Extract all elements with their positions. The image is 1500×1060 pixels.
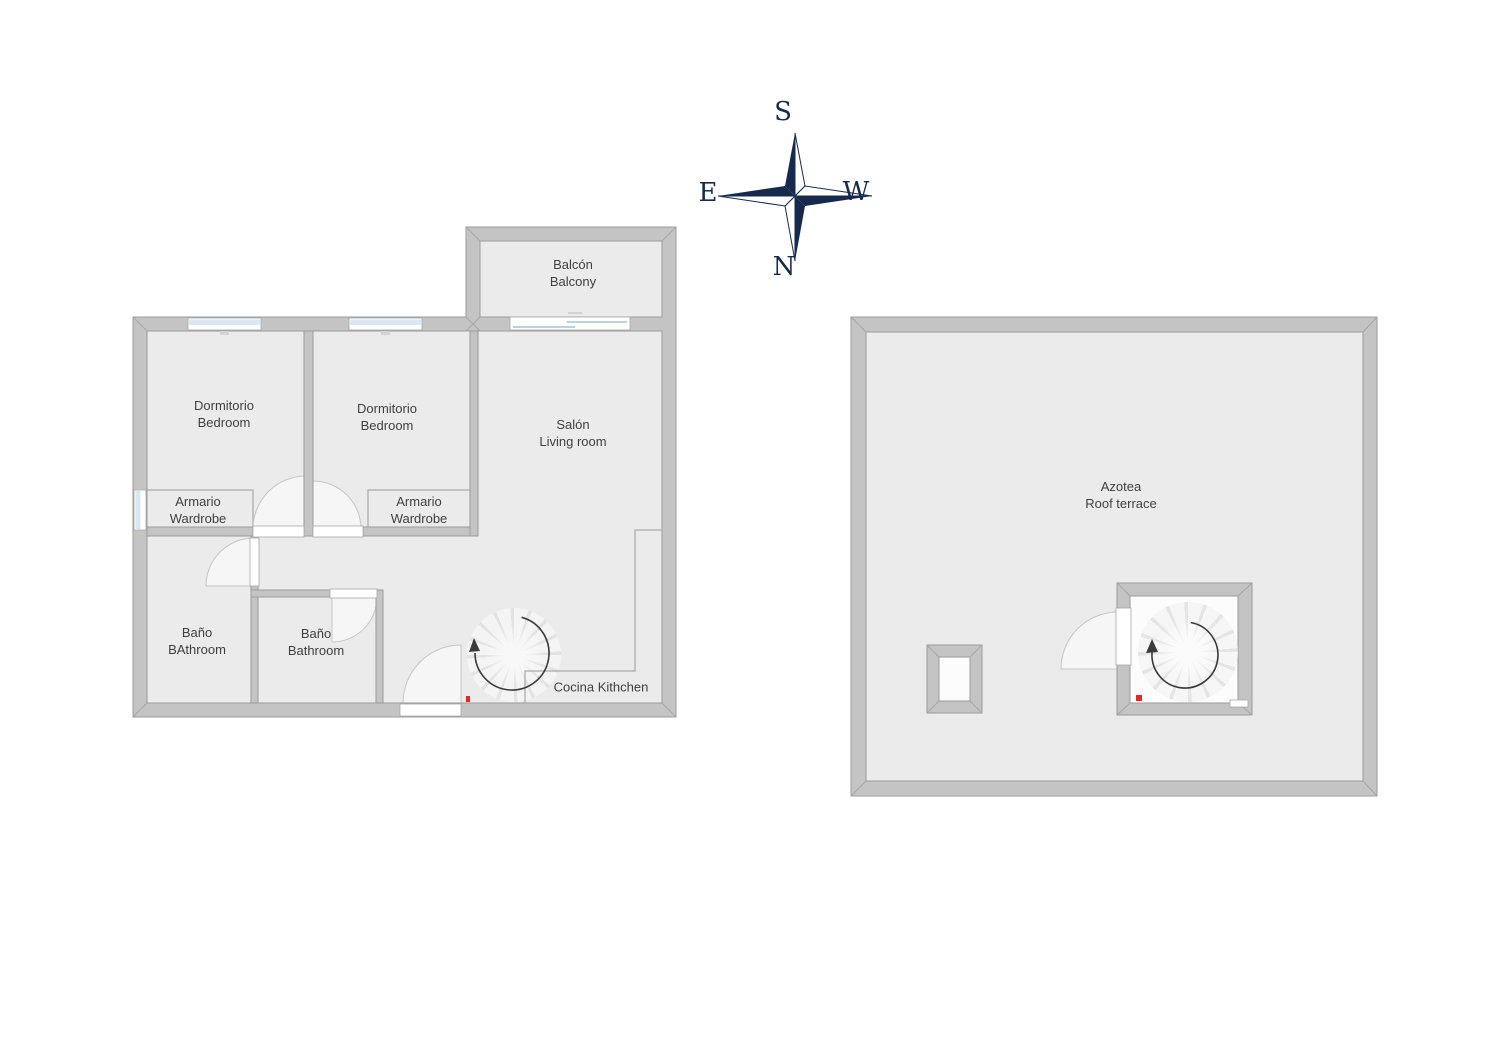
room-label-roof-terrace: Azotea Roof terrace — [1085, 478, 1157, 512]
room-name-en: Wardrobe — [391, 511, 448, 526]
entrance-threshold — [400, 704, 461, 716]
room-label-balcony: Balcón Balcony — [550, 256, 596, 290]
room-label-bedroom1: Dormitorio Bedroom — [194, 397, 254, 431]
room-label-wardrobe1: Armario Wardrobe — [170, 493, 227, 527]
room-name-es: Armario — [175, 494, 221, 509]
room-name-es: Salón — [556, 417, 589, 432]
compass-letter-bottom: N — [773, 252, 796, 282]
compass-letter-right: W — [843, 177, 870, 207]
room-name-es: Balcón — [553, 257, 593, 272]
floorplan-drawing — [0, 0, 1500, 1060]
window-side-wall — [134, 490, 146, 530]
compass-letter-top: S — [774, 97, 792, 127]
floorplan-page: Dormitorio Bedroom Dormitorio Bedroom Sa… — [0, 0, 1500, 1060]
room-name-es: Armario — [396, 494, 442, 509]
room-name-es: Baño — [301, 626, 331, 641]
room-label-kitchen: Cocina Kithchen — [554, 679, 649, 696]
spiral-staircase-floor1 — [467, 608, 561, 702]
room-name-en: Bedroom — [198, 415, 251, 430]
spiral-staircase-roof — [1138, 602, 1238, 702]
room-name-es: Dormitorio — [194, 398, 254, 413]
room-name-es: Azotea — [1101, 479, 1141, 494]
enclosure-vent — [1230, 700, 1248, 707]
enclosure-door-gap — [1116, 608, 1131, 665]
room-label-bathroom1: Baño BAthroom — [168, 624, 226, 658]
room-name-en: BAthroom — [168, 642, 226, 657]
room-name-en: Roof terrace — [1085, 496, 1157, 511]
room-label-living: Salón Living room — [539, 416, 606, 450]
room-name: Cocina Kithchen — [554, 680, 649, 695]
room-name-en: Bedroom — [361, 418, 414, 433]
roof-chimney-box — [927, 645, 982, 713]
room-name-en: Living room — [539, 434, 606, 449]
room-label-bedroom2: Dormitorio Bedroom — [357, 400, 417, 434]
compass-letter-left: E — [699, 178, 718, 208]
room-name-en: Bathroom — [288, 643, 344, 658]
room-name-en: Wardrobe — [170, 511, 227, 526]
room-label-wardrobe2: Armario Wardrobe — [391, 493, 448, 527]
room-name-es: Baño — [182, 625, 212, 640]
room-label-bathroom2: Baño Bathroom — [288, 625, 344, 659]
room-name-es: Dormitorio — [357, 401, 417, 416]
room-name-en: Balcony — [550, 274, 596, 289]
